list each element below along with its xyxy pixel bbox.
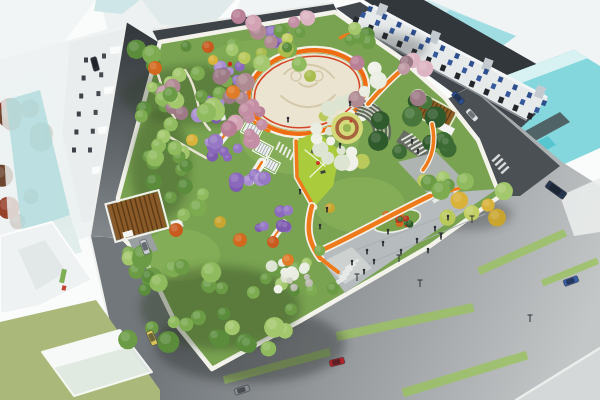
flower-lawn-center	[343, 124, 351, 132]
scene-layers	[0, 0, 600, 400]
park-aerial-rendering: Aerial perspective rendering of an urban…	[0, 0, 600, 400]
flower-lawn-red-dot	[349, 119, 352, 122]
forest-red-feature	[228, 62, 232, 66]
scene-svg	[0, 0, 600, 400]
play-equipment-red	[316, 161, 320, 165]
